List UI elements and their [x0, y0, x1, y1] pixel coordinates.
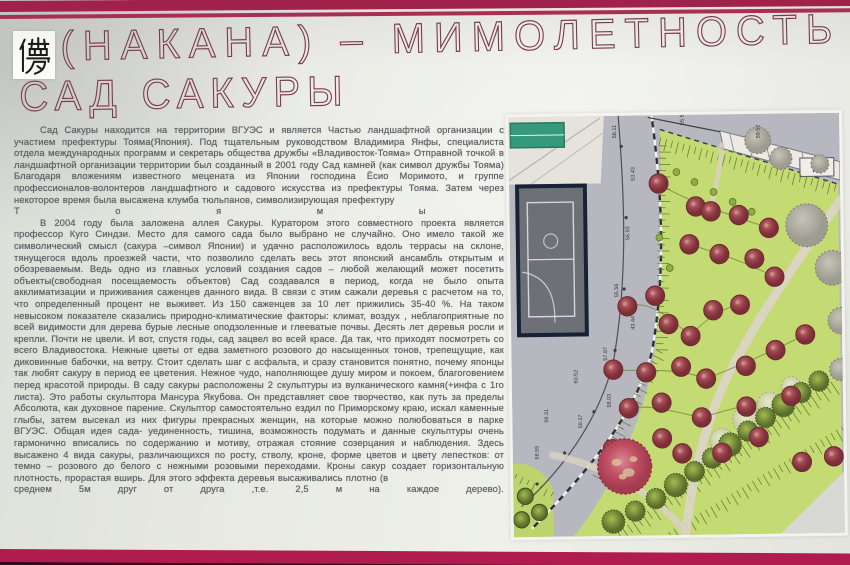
sakura-tree — [692, 408, 711, 428]
hatch-tick — [657, 251, 669, 252]
paragraph-1: Сад Сакуры находится на территории ВГУЭС… — [14, 124, 504, 205]
sakura-tree — [704, 300, 723, 320]
article-text: Сад Сакуры находится на территории ВГУЭС… — [14, 124, 504, 495]
sakura-tree — [782, 386, 801, 406]
sakura-tree — [796, 325, 815, 345]
elevation-label: 43.44 — [631, 316, 637, 330]
hatch-tick — [657, 263, 669, 264]
spread-word: каждое — [407, 483, 439, 495]
spread-word: друг — [118, 483, 137, 495]
elevation-label: 55.50 — [680, 113, 686, 125]
elevation-label: 60.52 — [573, 370, 579, 384]
hatch-tick — [658, 226, 670, 227]
spread-letter: м — [317, 205, 324, 217]
spread-word: друга — [200, 483, 224, 495]
justified-last-line: среднем5мдруготдруга,т.е.2,5мнакаждоедер… — [14, 483, 504, 495]
sakura-tree — [652, 393, 671, 413]
small-shrub — [656, 234, 663, 241]
hatch-tick — [656, 350, 668, 351]
sakura-tree — [766, 340, 785, 360]
shrub — [514, 512, 530, 529]
sakura-tree — [671, 357, 690, 377]
sakura-tree — [653, 429, 672, 449]
spread-letter: Т — [14, 205, 20, 217]
spread-word: среднем — [14, 483, 52, 495]
small-shrub — [691, 179, 698, 186]
landscape-plan: ► 58.1153.4356.9355.5643.4457.8758.0360.… — [505, 110, 848, 541]
elevation-label: 59.31 — [544, 409, 550, 423]
sakura-tree — [637, 363, 656, 383]
hatch-tick — [656, 337, 668, 338]
shrub — [517, 488, 533, 505]
hatch-tick — [658, 214, 670, 215]
poster-subtitle: САД САКУРЫ — [19, 68, 350, 121]
spread-letter: о — [115, 205, 120, 217]
hatch-tick — [659, 152, 671, 153]
hatch-tick — [657, 275, 669, 276]
plan-sports-court — [517, 186, 587, 336]
kanji-hakana-icon — [13, 31, 55, 79]
spread-letter: ы — [419, 205, 426, 217]
spread-word: 2,5 — [295, 483, 308, 495]
sakura-tree — [745, 249, 764, 269]
elevation-label: 58.03 — [607, 394, 613, 408]
sakura-tree — [619, 398, 638, 418]
sakura-tree — [792, 452, 811, 472]
elevation-label: 57.87 — [603, 347, 609, 361]
sakura-tree — [737, 397, 756, 417]
elevation-label: 58.11 — [612, 125, 618, 138]
shrub — [531, 504, 547, 521]
sakura-tree — [749, 427, 768, 447]
elevation-label: 58.55 — [535, 446, 541, 460]
hatch-tick — [663, 535, 667, 537]
spread-word: от — [164, 483, 174, 495]
elevation-label: 56.93 — [625, 226, 631, 240]
sakura-tree — [681, 326, 700, 346]
small-shrub — [729, 198, 736, 205]
sakura-tree — [697, 369, 716, 389]
sakura-tree — [730, 295, 749, 315]
sakura-tree — [824, 447, 843, 467]
hatch-tick — [656, 313, 668, 314]
sakura-tree — [710, 244, 729, 264]
sakura-tree — [604, 360, 623, 380]
sakura-tree — [759, 218, 778, 238]
spread-word: дерево). — [466, 483, 504, 495]
sakura-tree — [765, 267, 784, 287]
small-shrub — [710, 188, 717, 195]
paragraph-2: В 2004 году была заложена аллея Сакуры. … — [14, 217, 504, 484]
elevation-label: 59.37 — [578, 414, 584, 428]
poster-photo: (НАКАНА) – МИМОЛЕТНОСТЬ САД САКУРЫ Сад С… — [0, 0, 850, 565]
elevation-label: 59.52 — [755, 125, 761, 139]
sakura-tree — [646, 286, 665, 306]
sakura-tree — [649, 174, 668, 194]
sakura-tree — [659, 314, 678, 334]
hatch-tick — [658, 201, 670, 202]
spread-word: м — [336, 483, 343, 495]
elevation-label: 53.43 — [630, 167, 636, 181]
sakura-tree — [618, 296, 637, 316]
sakura-tree — [701, 202, 720, 222]
spread-word: 5м — [79, 483, 91, 495]
sakura-tree — [713, 443, 732, 463]
elevation-label: 55.56 — [614, 283, 620, 297]
sakura-tree — [736, 356, 755, 376]
spread-word: ,т.е. — [252, 483, 269, 495]
sakura-tree — [729, 205, 748, 225]
hatch-tick — [659, 164, 671, 165]
small-shrub — [673, 169, 680, 176]
sakura-tree — [680, 234, 699, 254]
spread-word: на — [369, 483, 380, 495]
small-shrub — [666, 264, 673, 271]
justified-word-toyama: Тоямы — [14, 205, 426, 217]
sakura-tree — [673, 444, 692, 464]
bottom-stripe — [0, 549, 850, 565]
spread-letter: я — [216, 205, 221, 217]
small-shrub — [748, 208, 755, 215]
